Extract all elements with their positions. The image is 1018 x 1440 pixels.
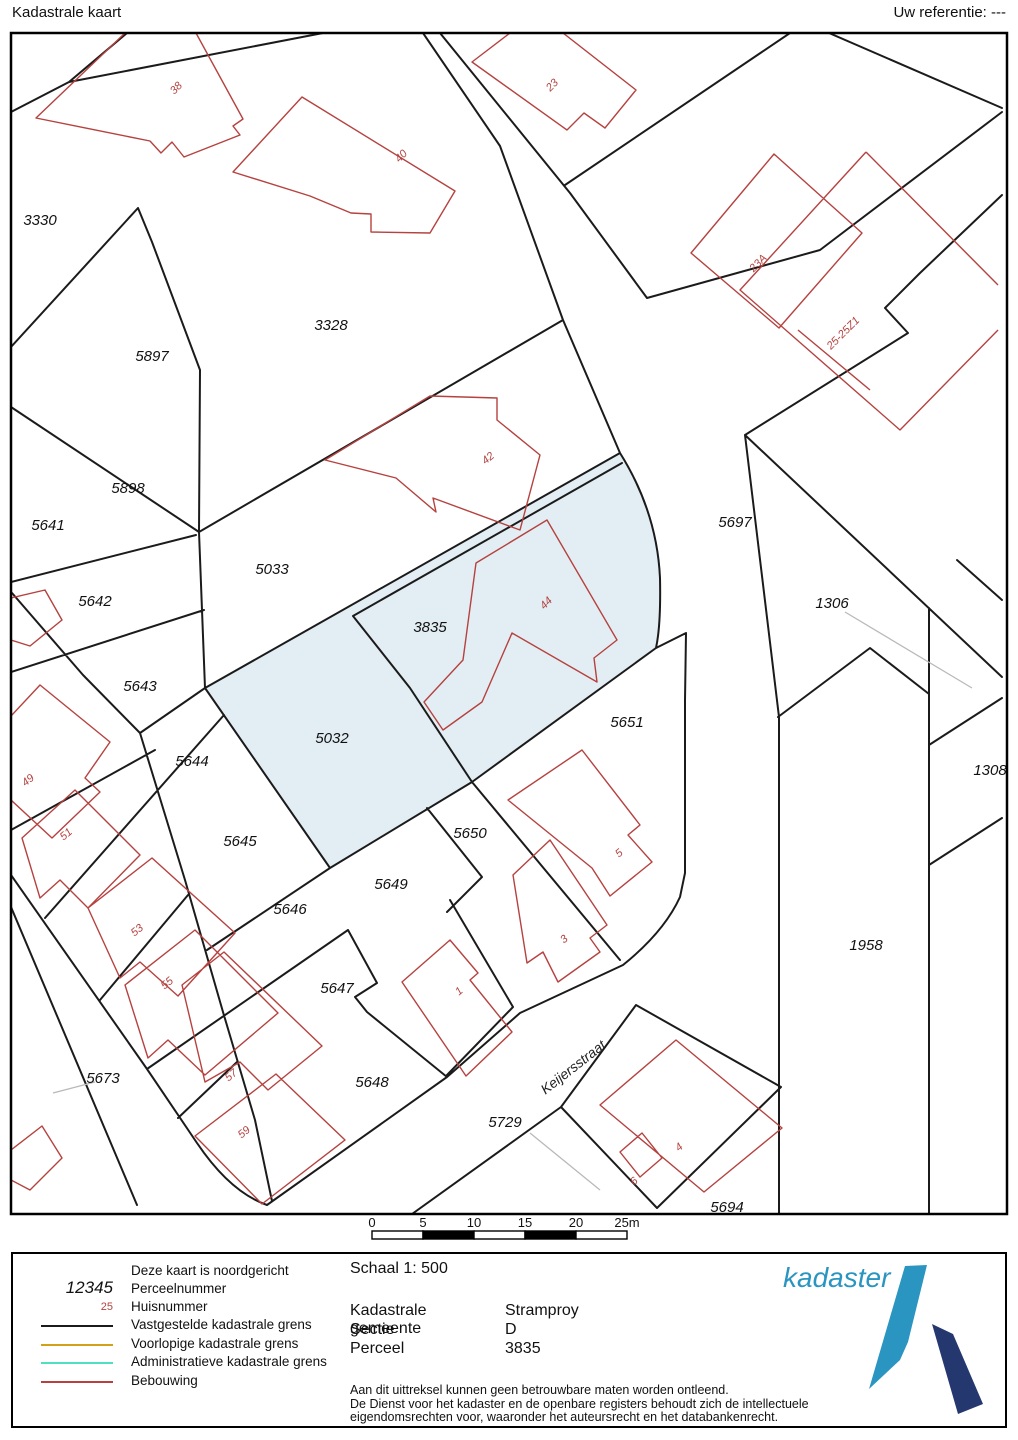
parcel-number-sample: 12345 bbox=[33, 1278, 113, 1298]
detail-value: 3835 bbox=[505, 1340, 541, 1358]
parcel-number-label: 5673 bbox=[86, 1070, 120, 1087]
legend-line-label: Voorlopige kadastrale grens bbox=[131, 1336, 298, 1351]
house-number-legend-label: Huisnummer bbox=[131, 1299, 208, 1314]
parcel-number-label: 5697 bbox=[718, 514, 752, 531]
scale-text: Schaal 1: 500 bbox=[350, 1260, 448, 1278]
reference-label: Uw referentie: --- bbox=[893, 4, 1006, 21]
scale-bar-segment bbox=[525, 1231, 576, 1239]
parcel-number-label: 1958 bbox=[849, 937, 883, 954]
parcel-number-label: 5729 bbox=[488, 1114, 522, 1131]
kadastrale-kaart-page: { "header": { "title": "Kadastrale kaart… bbox=[0, 0, 1018, 1440]
parcel-number-label: 5644 bbox=[175, 753, 208, 770]
parcel-number-label: 1306 bbox=[815, 595, 849, 612]
legend-line-label: Administratieve kadastrale grens bbox=[131, 1354, 327, 1369]
parcel-number-label: 3330 bbox=[23, 212, 57, 229]
scale-bar-segment bbox=[372, 1231, 423, 1239]
detail-label: Sectie bbox=[350, 1321, 394, 1339]
detail-value: Stramproy bbox=[505, 1302, 579, 1320]
parcel-number-label: 5642 bbox=[78, 593, 112, 610]
north-note: Deze kaart is noordgericht bbox=[131, 1263, 289, 1278]
legend-line-label: Vastgestelde kadastrale grens bbox=[131, 1317, 312, 1332]
scale-tick-label: 20 bbox=[569, 1215, 583, 1230]
scale-tick-label: 0 bbox=[368, 1215, 375, 1230]
parcel-number-label: 5647 bbox=[320, 980, 354, 997]
disclaimer-text: Aan dit uittreksel kunnen geen betrouwba… bbox=[350, 1384, 809, 1425]
parcel-number-label: 5648 bbox=[355, 1074, 389, 1091]
parcel-number-label: 5641 bbox=[31, 517, 64, 534]
parcel-number-legend-label: Perceelnummer bbox=[131, 1281, 226, 1296]
detail-label: Perceel bbox=[350, 1340, 404, 1358]
legend-line-label: Bebouwing bbox=[131, 1373, 198, 1388]
scale-bar-segment bbox=[576, 1231, 627, 1239]
scale-bar-segment bbox=[474, 1231, 525, 1239]
parcel-number-label: 5651 bbox=[610, 714, 643, 731]
legend-line-swatch bbox=[41, 1381, 113, 1383]
parcel-number-label: 5645 bbox=[223, 833, 257, 850]
parcel-number-label: 5033 bbox=[255, 561, 289, 578]
parcel-number-label: 5898 bbox=[111, 480, 145, 497]
kadaster-logo-icon bbox=[865, 1258, 989, 1422]
scale-tick-label: 10 bbox=[467, 1215, 481, 1230]
scale-tick-label: 15 bbox=[518, 1215, 532, 1230]
parcel-number-label: 3328 bbox=[314, 317, 348, 334]
parcel-number-label: 5649 bbox=[374, 876, 408, 893]
disclaimer-line: Aan dit uittreksel kunnen geen betrouwba… bbox=[350, 1384, 809, 1398]
parcel-number-label: 1308 bbox=[973, 762, 1007, 779]
parcel-number-label: 5643 bbox=[123, 678, 157, 695]
scale-tick-label: 5 bbox=[419, 1215, 426, 1230]
parcel-number-label: 5897 bbox=[135, 348, 169, 365]
detail-value: D bbox=[505, 1321, 517, 1339]
legend-line-swatch bbox=[41, 1362, 113, 1364]
scale-tick-label: 25m bbox=[614, 1215, 639, 1230]
legend-line-swatch bbox=[41, 1325, 113, 1327]
parcel-number-label: 3835 bbox=[413, 619, 447, 636]
parcel-number-label: 5646 bbox=[273, 901, 307, 918]
cadastral-map: 3330589733285898564156425643564456455646… bbox=[0, 0, 1018, 1250]
disclaimer-line: eigendomsrechten voor, waaronder het aut… bbox=[350, 1411, 809, 1425]
scale-bar: 0510152025m bbox=[368, 1215, 639, 1239]
footer-panel: Deze kaart is noordgericht 12345 Perceel… bbox=[11, 1252, 1007, 1428]
disclaimer-line: De Dienst voor het kadaster en de openba… bbox=[350, 1398, 809, 1412]
page-title: Kadastrale kaart bbox=[12, 4, 121, 21]
house-number-sample: 25 bbox=[33, 1301, 113, 1313]
scale-bar-segment bbox=[423, 1231, 474, 1239]
parcel-number-label: 5032 bbox=[315, 730, 349, 747]
legend-line-swatch bbox=[41, 1344, 113, 1346]
parcel-number-label: 5650 bbox=[453, 825, 487, 842]
